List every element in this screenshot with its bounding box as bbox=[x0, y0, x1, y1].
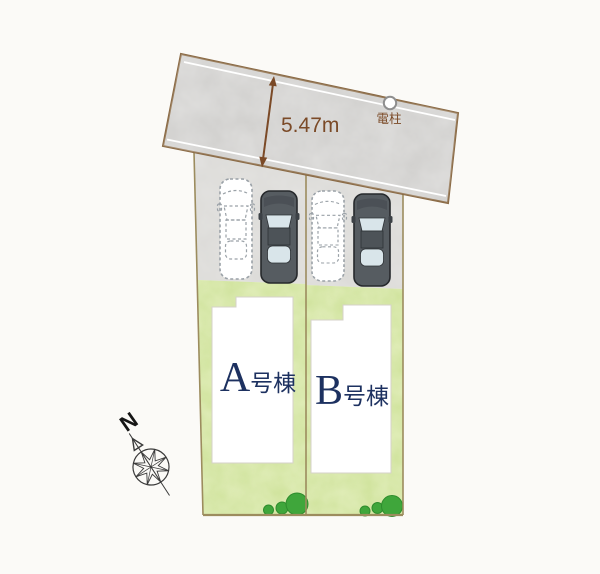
building-a-letter: A bbox=[220, 355, 251, 401]
building-b-letter: B bbox=[315, 368, 343, 414]
building-b-suffix: 号棟 bbox=[343, 384, 389, 409]
car-icon bbox=[259, 191, 300, 283]
site-plan-drawing: 電柱 5.47m A号棟 B号棟 N bbox=[0, 0, 600, 574]
site-plan: 電柱 5.47m A号棟 B号棟 N bbox=[0, 0, 600, 574]
bush-icon bbox=[286, 493, 308, 515]
car-outline-icon bbox=[218, 179, 255, 279]
utility-pole-icon bbox=[384, 97, 396, 109]
building-a-suffix: 号棟 bbox=[250, 371, 296, 396]
bush-icon bbox=[382, 496, 403, 517]
utility-pole-label: 電柱 bbox=[376, 111, 401, 126]
road-width-label: 5.47m bbox=[281, 114, 339, 137]
car-icon bbox=[352, 194, 393, 286]
car-outline-icon bbox=[310, 191, 347, 281]
bush-icon bbox=[264, 505, 274, 515]
